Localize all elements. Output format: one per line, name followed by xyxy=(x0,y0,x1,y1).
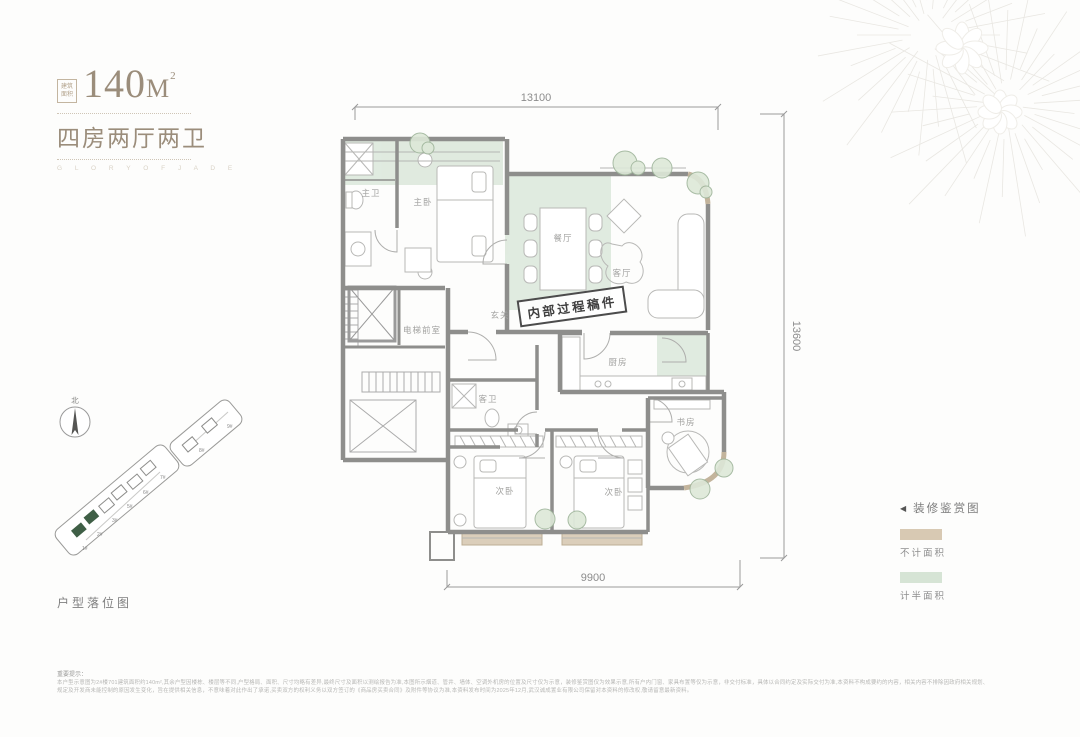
room-label-master-bath: 主卫 xyxy=(361,188,380,198)
dim-bottom: 9900 xyxy=(581,572,605,584)
bed-icon xyxy=(454,436,543,528)
room-label-bedroom-2: 次卧 xyxy=(604,487,623,497)
room-label-foyer: 玄关 xyxy=(490,310,509,320)
dim-right: 13600 xyxy=(790,321,802,352)
room-label-guest-bath: 客卫 xyxy=(478,394,497,404)
bed-icon xyxy=(556,436,642,528)
room-label-bedroom-1: 次卧 xyxy=(495,486,514,496)
legend: ◀ 装修鉴赏图 不计面积 计半面积 xyxy=(900,500,1020,602)
room-label-elevator-lobby: 电梯前室 xyxy=(403,325,441,335)
building-label: 2# xyxy=(97,532,103,538)
compass-icon: 北 xyxy=(60,396,90,437)
disclaimer-line-2: 规定及开发商未能控制的原因发生变化，旨在提供相关信息，不意味着对此作出了承诺,买… xyxy=(57,688,1032,696)
building-label: 7# xyxy=(160,475,166,481)
dining-table-icon xyxy=(524,208,602,290)
site-plan-title: 户型落位图 xyxy=(57,594,132,611)
floor-plan-drawing: 主卫 主卧 餐厅 客厅 玄关 电梯前室 厨房 客卫 次卧 次卧 书房 13100… xyxy=(0,0,1080,737)
room-label-master-bedroom: 主卧 xyxy=(413,197,432,207)
building-label: 1# xyxy=(82,546,88,552)
dim-top: 13100 xyxy=(521,92,552,104)
disclaimer-title: 重要提示： xyxy=(57,669,1032,678)
legend-swatch-tan xyxy=(900,529,942,540)
floorplan-page: 建筑 面积 140M2 四房两厅两卫 G L O R Y O F J A D E xyxy=(0,0,1080,737)
legend-label-no-count: 不计面积 xyxy=(900,545,1020,559)
legend-label-half-area: 计半面积 xyxy=(900,588,1020,602)
room-label-dining: 餐厅 xyxy=(553,233,572,243)
legend-swatch-green xyxy=(900,572,942,583)
building-label: 5# xyxy=(127,504,133,510)
left-triangle-icon: ◀ xyxy=(900,504,908,513)
desk-icon xyxy=(654,400,710,476)
compass-north-label: 北 xyxy=(71,396,79,405)
legend-title: 装修鉴赏图 xyxy=(913,500,981,516)
room-label-living: 客厅 xyxy=(612,268,631,278)
vanity-icon xyxy=(345,232,371,266)
legend-title-row: ◀ 装修鉴赏图 xyxy=(900,500,1020,516)
disclaimer-line-1: 本户型示意图为2#楼701建筑面积约140m²,其余户型因楼栋、楼层等不同,户型… xyxy=(57,680,1032,688)
room-label-kitchen: 厨房 xyxy=(608,357,627,367)
building-label: 6# xyxy=(143,490,149,496)
building-label: 9# xyxy=(227,424,233,430)
disclaimer: 重要提示： 本户型示意图为2#楼701建筑面积约140m²,其余户型因楼栋、楼层… xyxy=(57,669,1032,695)
legend-item: 不计面积 xyxy=(900,529,1020,559)
stairs-hatch xyxy=(344,290,440,452)
building-label: 8# xyxy=(199,448,205,454)
legend-item: 计半面积 xyxy=(900,572,1020,602)
room-label-study: 书房 xyxy=(676,417,695,427)
shower-icon xyxy=(345,143,373,175)
elevator-icon xyxy=(349,287,395,341)
building-label: 3# xyxy=(112,518,118,524)
